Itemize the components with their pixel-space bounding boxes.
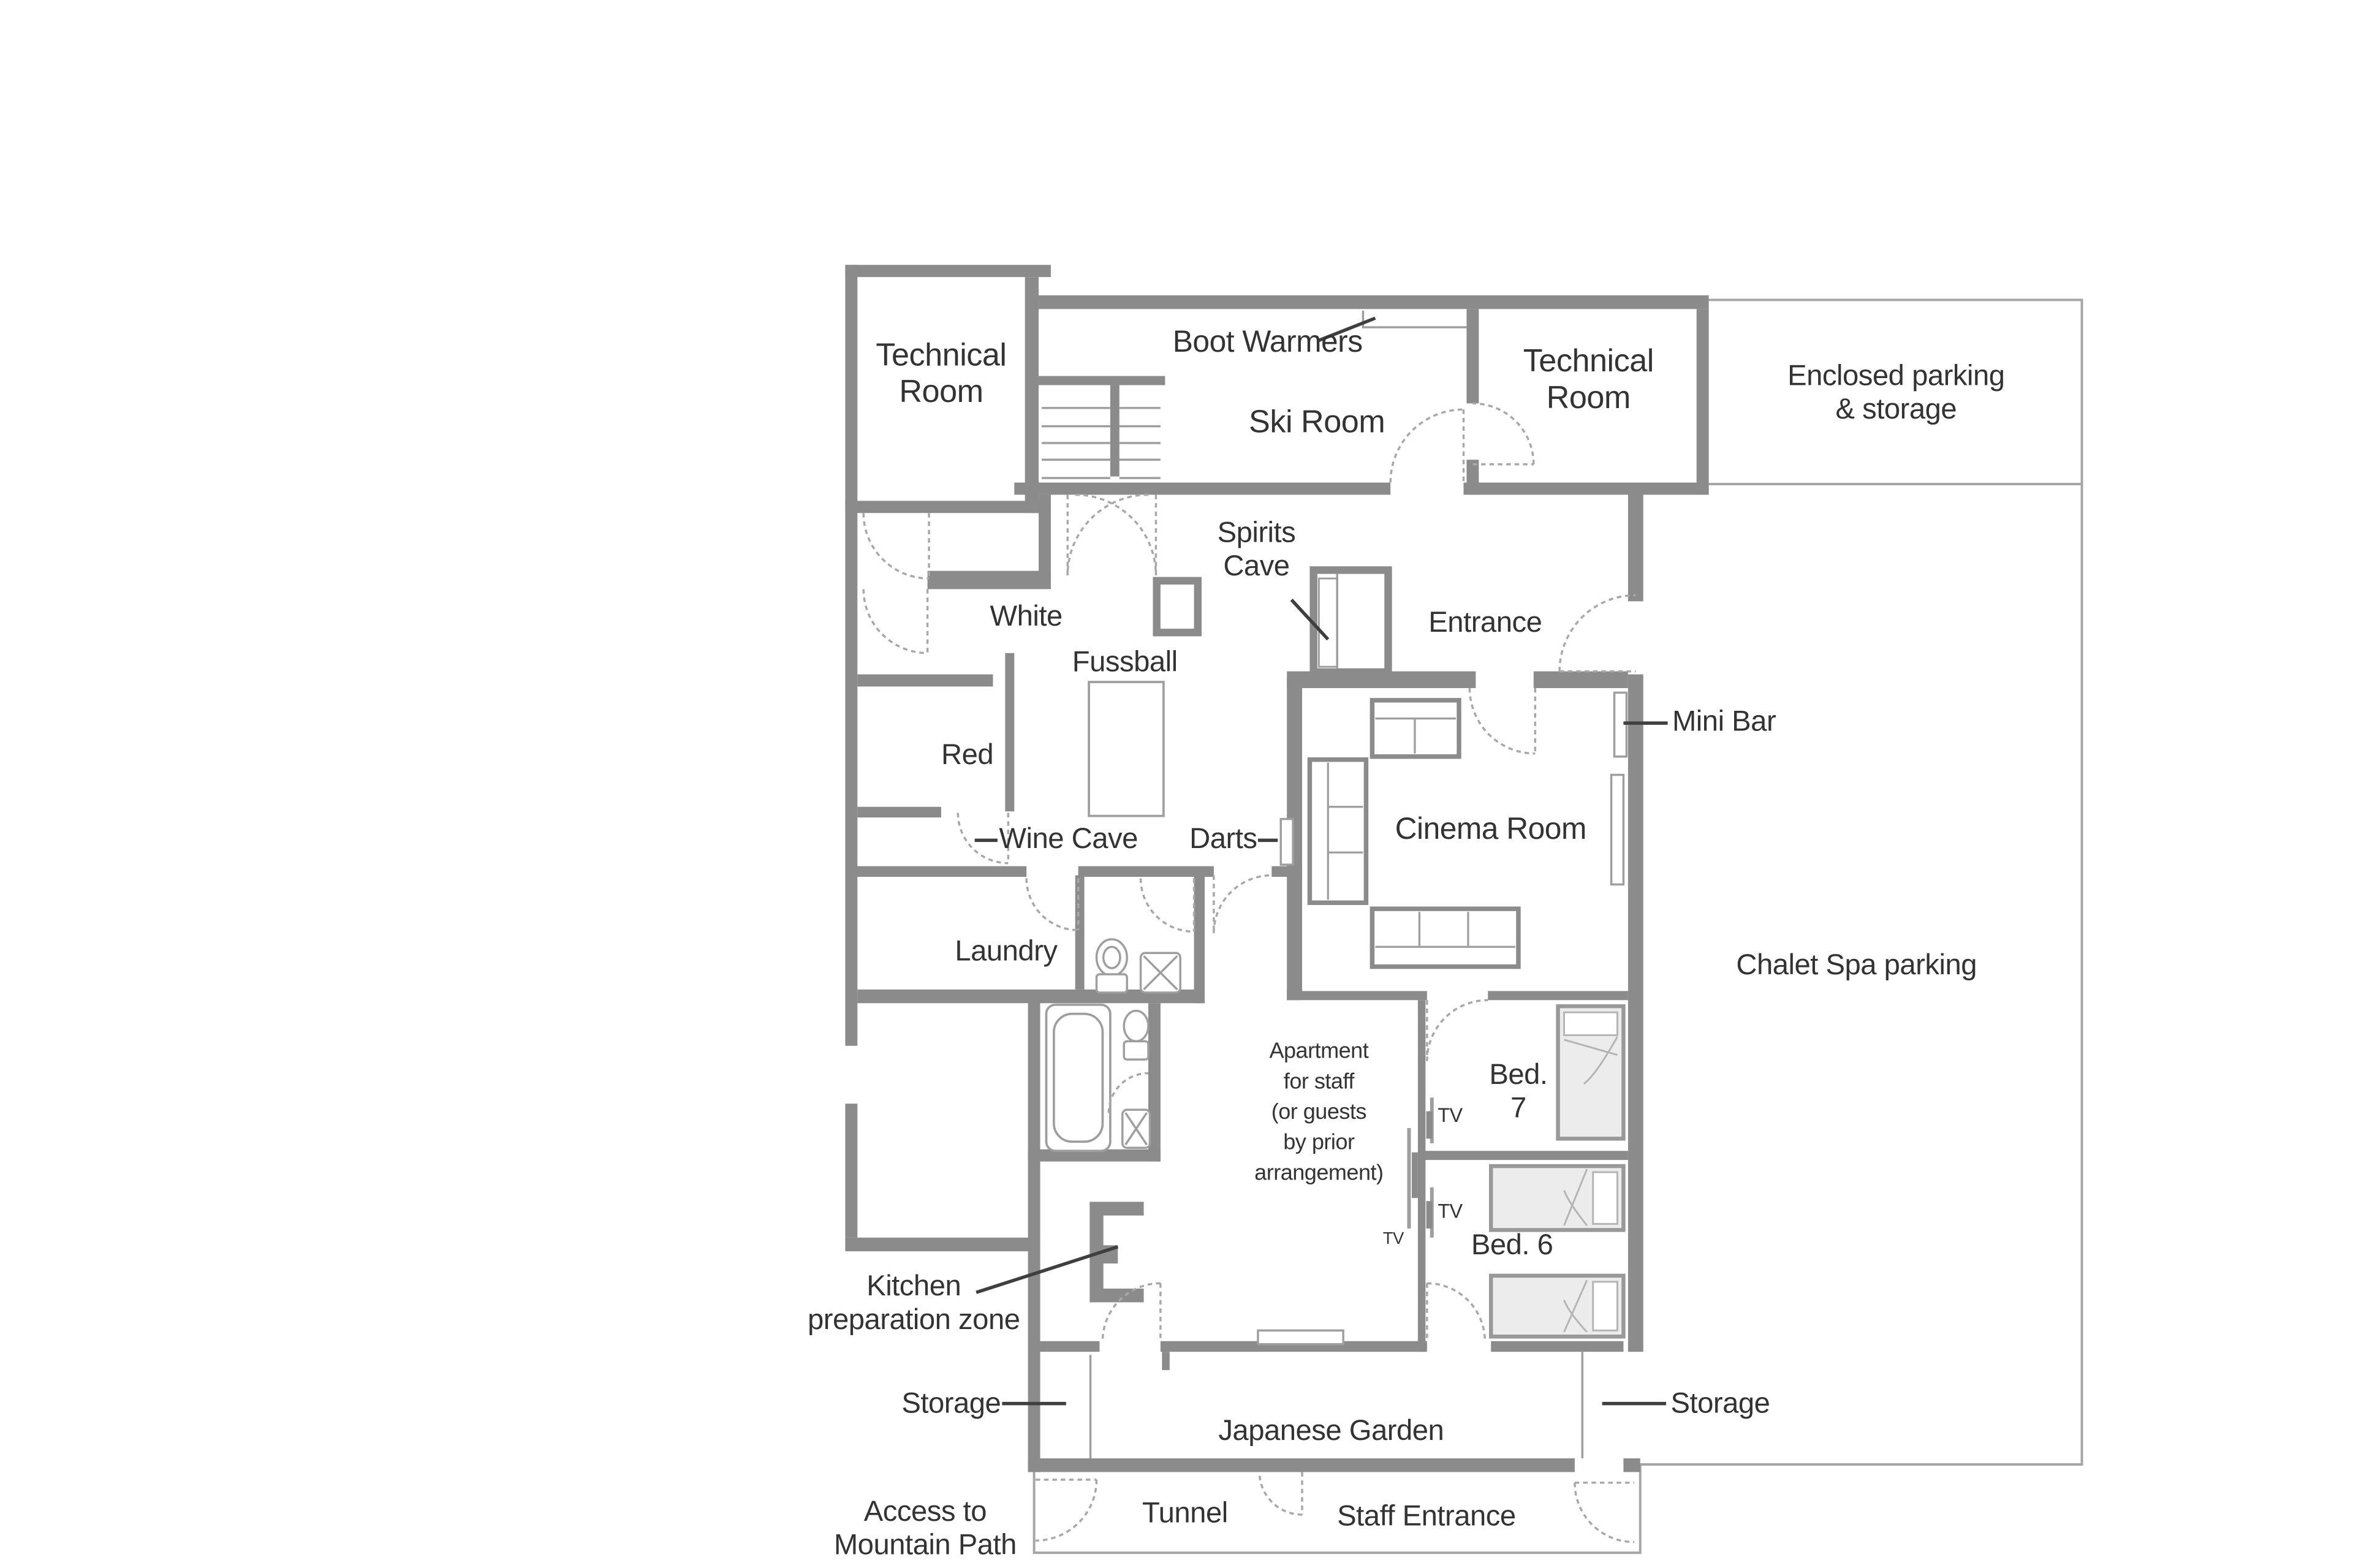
cinema-sofa-top-icon [1372, 700, 1459, 757]
stairs-icon [1042, 408, 1161, 478]
label-darts: Darts [1189, 824, 1257, 857]
wc-toilet-icon [1096, 939, 1127, 993]
label-boot-warmers: Boot Warmers [1173, 326, 1363, 361]
label-bed-7: Bed. 7 [1485, 1059, 1552, 1126]
label-tunnel: Tunnel [1142, 1498, 1228, 1531]
bed6-lower-icon [1491, 1276, 1623, 1336]
label-enclosed-parking: Enclosed parking & storage [1751, 361, 2040, 428]
dartboard-icon [1281, 819, 1293, 865]
bathtub-icon [1046, 1005, 1110, 1151]
label-mini-bar: Mini Bar [1672, 706, 1776, 740]
bathroom-shower-icon [1123, 1110, 1150, 1148]
floor-plan-page: Technical Room Boot Warmers Ski Room Tec… [0, 0, 2353, 1568]
label-fussball: Fussball [1072, 647, 1178, 680]
label-technical-room-right: Technical Room [1493, 344, 1684, 417]
cinema-couch-west-icon [1309, 760, 1366, 903]
cinema-sofa-bottom-icon [1372, 909, 1518, 966]
cinema-screen-icon [1612, 775, 1624, 885]
label-chalet-spa-parking: Chalet Spa parking [1736, 950, 1977, 983]
label-red: Red [941, 740, 993, 773]
label-japanese-garden: Japanese Garden [1218, 1415, 1444, 1449]
label-wine-cave: Wine Cave [999, 824, 1137, 857]
label-laundry: Laundry [955, 936, 1057, 969]
boot-warmer-shelf-icon [1363, 311, 1466, 327]
label-storage-left: Storage [901, 1388, 1001, 1422]
label-bed-6: Bed. 6 [1471, 1230, 1553, 1263]
label-apartment: Apartment for staff (or guests by prior … [1227, 1037, 1410, 1189]
label-tv-apartment: TV [1383, 1230, 1404, 1249]
bed6-upper-icon [1491, 1166, 1623, 1230]
floor-plan-stage: Technical Room Boot Warmers Ski Room Tec… [0, 0, 2353, 1568]
label-spirits-cave: Spirits Cave [1203, 518, 1309, 585]
label-tv-bed6: TV [1438, 1201, 1462, 1224]
label-staff-entrance: Staff Entrance [1337, 1501, 1515, 1534]
pillar-icon [1157, 581, 1198, 632]
label-kitchen-zone: Kitchen preparation zone [792, 1271, 1036, 1338]
label-ski-room: Ski Room [1249, 405, 1385, 442]
label-storage-right: Storage [1670, 1388, 1770, 1422]
label-technical-room-left: Technical Room [845, 338, 1037, 412]
label-cinema-room: Cinema Room [1395, 813, 1586, 848]
floor-plan-drawing [0, 0, 2353, 1568]
label-access-mountain-path: Access to Mountain Path [822, 1496, 1028, 1563]
bed7-icon [1558, 1006, 1624, 1138]
label-entrance: Entrance [1428, 607, 1542, 640]
label-tv-bed7: TV [1438, 1105, 1462, 1128]
label-white: White [990, 601, 1063, 634]
spirits-cave-closet-icon [1314, 570, 1389, 672]
bathroom-toilet-icon [1124, 1011, 1148, 1060]
fussball-table-icon [1089, 682, 1164, 816]
wc-shower-icon [1141, 953, 1181, 993]
